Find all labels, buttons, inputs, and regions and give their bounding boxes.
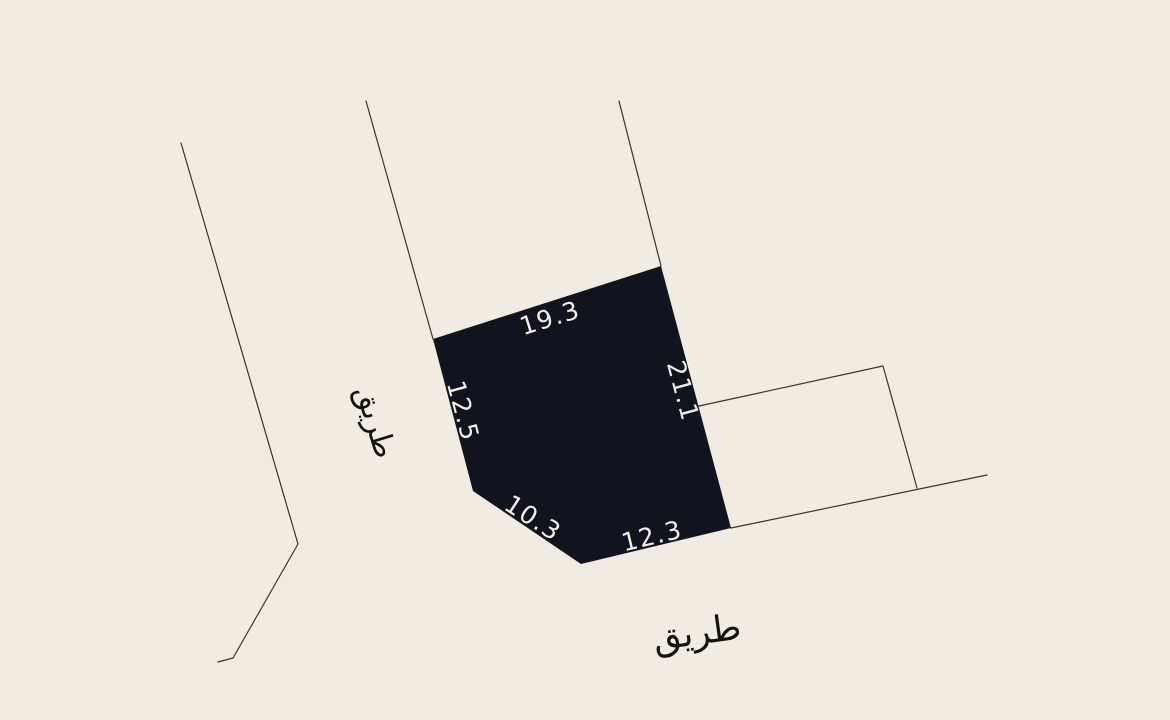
parcel-map: 19.3 21.1 12.5 10.3 12.3 طريق طريق — [0, 0, 1170, 720]
road-label-left: طريق — [347, 382, 402, 463]
road-edge-left — [181, 143, 298, 662]
road-edge-upper-left — [366, 101, 433, 339]
road-edge-upper-right — [619, 101, 661, 266]
road-label-bottom: طريق — [650, 607, 743, 660]
adjacent-parcel-outline — [699, 366, 917, 488]
parcel-map-canvas: 19.3 21.1 12.5 10.3 12.3 طريق طريق — [0, 0, 1170, 720]
road-edge-bottom — [731, 475, 987, 528]
